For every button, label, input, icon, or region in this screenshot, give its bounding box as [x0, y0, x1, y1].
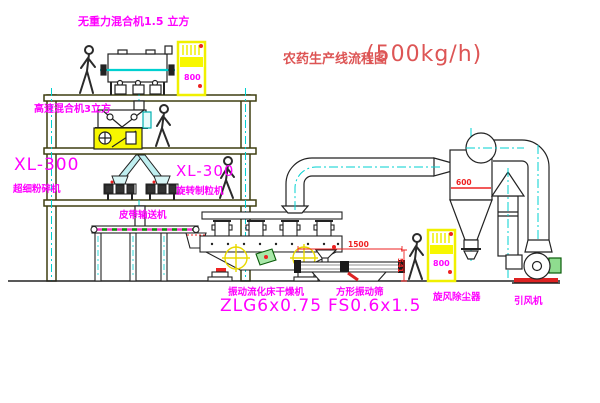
label-gravity-mixer: 无重力混合机1.5 立方 — [78, 16, 189, 27]
label-granulator-name: 旋转制粒机 — [176, 187, 224, 197]
label-granulator-model: XL-300 — [176, 164, 234, 179]
cabinet-right-800: 800 — [433, 260, 450, 268]
control-cabinet-right — [428, 230, 455, 281]
label-dryer-model: ZLG6x0.75 — [220, 298, 322, 315]
dim-screen-541: 541 — [396, 258, 403, 273]
label-crusher-name: 超细粉碎机 — [13, 185, 61, 195]
granulator-left — [104, 176, 136, 200]
label-cyclone: 旋风除尘器 — [433, 293, 481, 303]
induced-draft-fan — [506, 253, 561, 283]
dim-cyclone-600: 600 — [456, 179, 472, 187]
control-cabinet-top — [178, 42, 205, 95]
dim-screen-1500: 1500 — [348, 241, 369, 249]
gravity-free-mixer — [100, 46, 175, 95]
dryer-exhaust-duct — [282, 158, 452, 213]
cabinet-top-800: 800 — [184, 74, 201, 82]
person-figure-2 — [156, 105, 170, 146]
diagram-capacity: (500kg/h) — [366, 44, 482, 66]
label-screen-model: FS0.6x1.5 — [328, 298, 421, 315]
label-high-speed-mixer: 高速混合机3立方 — [34, 105, 111, 115]
label-fan: 引风机 — [514, 297, 543, 307]
belt-conveyor — [91, 226, 199, 281]
person-figure-4 — [409, 234, 423, 279]
process-flow-diagram: 无重力混合机1.5 立方 农药生产线流程图 (500kg/h) 高速混合机3立方… — [0, 0, 600, 403]
label-crusher-model: XL-300 — [14, 157, 79, 174]
label-belt-conveyor: 皮带输送机 — [119, 211, 167, 221]
person-figure-1 — [80, 46, 95, 93]
granulator-right — [146, 176, 178, 200]
